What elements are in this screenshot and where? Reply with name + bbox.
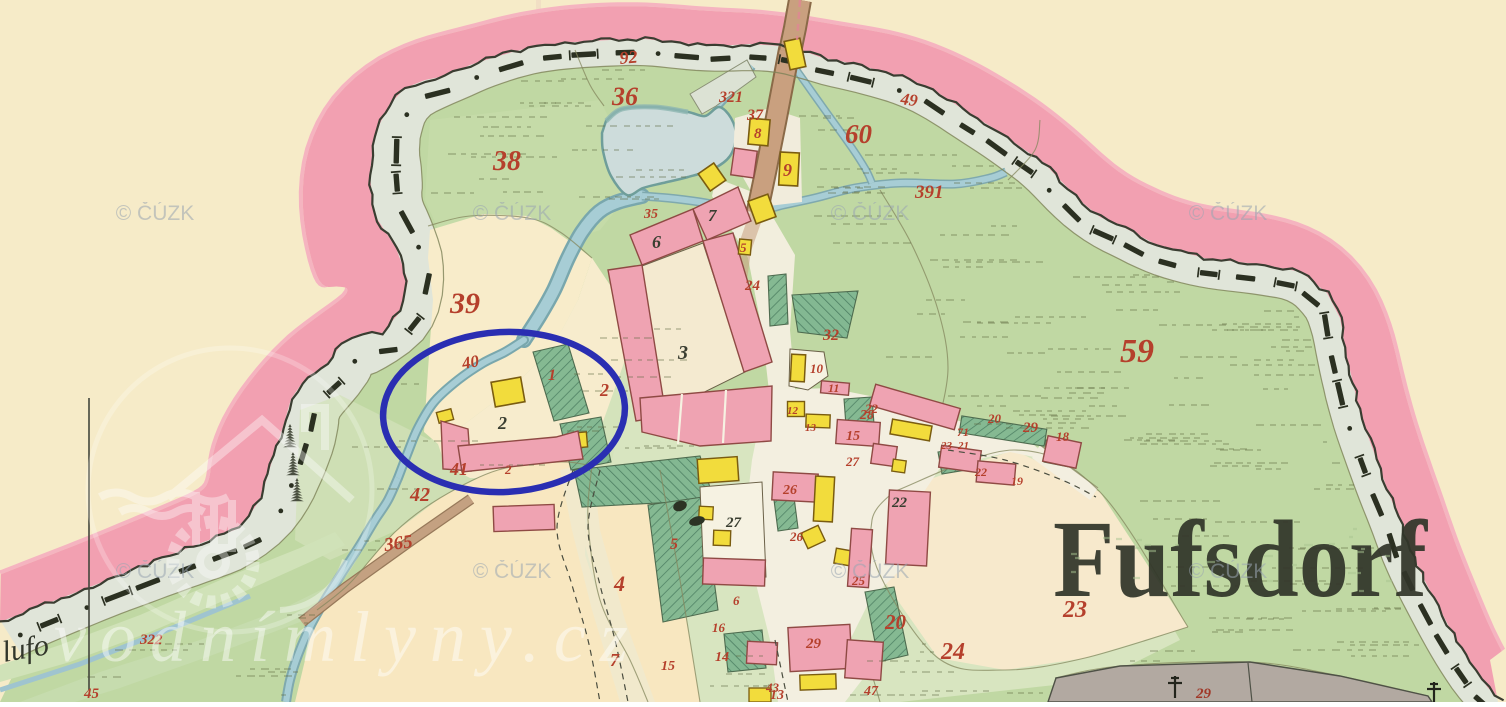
svg-text:© ČÚZK: © ČÚZK bbox=[473, 560, 551, 583]
svg-text:2: 2 bbox=[599, 380, 609, 400]
svg-text:22: 22 bbox=[864, 401, 879, 416]
svg-text:© ČÚZK: © ČÚZK bbox=[116, 560, 194, 583]
svg-text:21: 21 bbox=[957, 440, 969, 452]
svg-text:391: 391 bbox=[914, 182, 944, 203]
svg-text:27: 27 bbox=[725, 515, 742, 531]
svg-text:2: 2 bbox=[504, 462, 512, 477]
svg-text:38: 38 bbox=[492, 146, 521, 177]
svg-text:8: 8 bbox=[754, 126, 762, 142]
svg-text:© ČÚZK: © ČÚZK bbox=[1189, 202, 1267, 225]
svg-text:© ČÚZK: © ČÚZK bbox=[1189, 560, 1267, 583]
svg-text:© ČÚZK: © ČÚZK bbox=[116, 202, 194, 225]
svg-text:19: 19 bbox=[1011, 474, 1023, 488]
svg-text:29: 29 bbox=[805, 636, 822, 652]
svg-text:18: 18 bbox=[1056, 429, 1070, 444]
svg-text:20: 20 bbox=[987, 411, 1002, 426]
svg-text:6: 6 bbox=[652, 232, 661, 252]
svg-text:29: 29 bbox=[1195, 686, 1212, 702]
svg-text:92: 92 bbox=[619, 46, 639, 67]
svg-text:© ČÚZK: © ČÚZK bbox=[831, 202, 909, 225]
svg-text:4: 4 bbox=[613, 571, 625, 596]
svg-text:49: 49 bbox=[898, 89, 919, 110]
svg-text:35: 35 bbox=[643, 207, 658, 222]
svg-text:26: 26 bbox=[782, 483, 797, 498]
svg-text:47: 47 bbox=[863, 684, 879, 699]
svg-text:59: 59 bbox=[1120, 333, 1154, 370]
svg-text:12: 12 bbox=[787, 405, 799, 417]
svg-text:43: 43 bbox=[765, 680, 780, 695]
svg-text:40: 40 bbox=[459, 351, 481, 373]
svg-text:24: 24 bbox=[744, 278, 761, 294]
svg-text:27: 27 bbox=[845, 454, 860, 469]
svg-text:60: 60 bbox=[845, 119, 873, 149]
svg-text:71: 71 bbox=[957, 425, 969, 439]
svg-text:22: 22 bbox=[891, 495, 908, 511]
svg-text:16: 16 bbox=[712, 620, 726, 635]
svg-text:11: 11 bbox=[828, 381, 839, 395]
svg-text:20: 20 bbox=[884, 610, 907, 634]
svg-text:© ČÚZK: © ČÚZK bbox=[473, 202, 551, 225]
svg-text:39: 39 bbox=[449, 287, 480, 320]
svg-text:© ČÚZK: © ČÚZK bbox=[831, 560, 909, 583]
svg-text:5: 5 bbox=[740, 240, 747, 255]
svg-text:15: 15 bbox=[846, 429, 860, 444]
svg-text:26: 26 bbox=[789, 529, 804, 544]
svg-text:10: 10 bbox=[810, 361, 824, 376]
svg-text:2: 2 bbox=[497, 413, 507, 433]
svg-text:13: 13 bbox=[805, 422, 817, 434]
svg-text:14: 14 bbox=[715, 650, 729, 665]
svg-text:Fufsdorf: Fufsdorf bbox=[1053, 498, 1428, 620]
svg-text:32: 32 bbox=[822, 327, 839, 344]
svg-text:15: 15 bbox=[661, 659, 675, 674]
svg-text:3: 3 bbox=[677, 342, 688, 364]
svg-text:321: 321 bbox=[718, 89, 743, 106]
svg-text:45: 45 bbox=[83, 686, 100, 702]
svg-text:1: 1 bbox=[548, 367, 556, 384]
svg-text:29: 29 bbox=[1022, 420, 1039, 436]
svg-text:36: 36 bbox=[611, 82, 638, 111]
svg-text:42: 42 bbox=[409, 484, 430, 506]
svg-text:41: 41 bbox=[449, 459, 468, 479]
svg-text:365: 365 bbox=[382, 531, 415, 556]
svg-text:vodnímlyny.cz: vodnímlyny.cz bbox=[54, 597, 642, 677]
svg-text:5: 5 bbox=[670, 536, 678, 553]
svg-text:23: 23 bbox=[940, 440, 953, 452]
svg-text:9: 9 bbox=[783, 160, 792, 180]
svg-text:24: 24 bbox=[940, 639, 965, 665]
svg-text:6: 6 bbox=[733, 593, 740, 608]
svg-text:37: 37 bbox=[746, 107, 764, 124]
svg-text:22: 22 bbox=[974, 465, 987, 479]
